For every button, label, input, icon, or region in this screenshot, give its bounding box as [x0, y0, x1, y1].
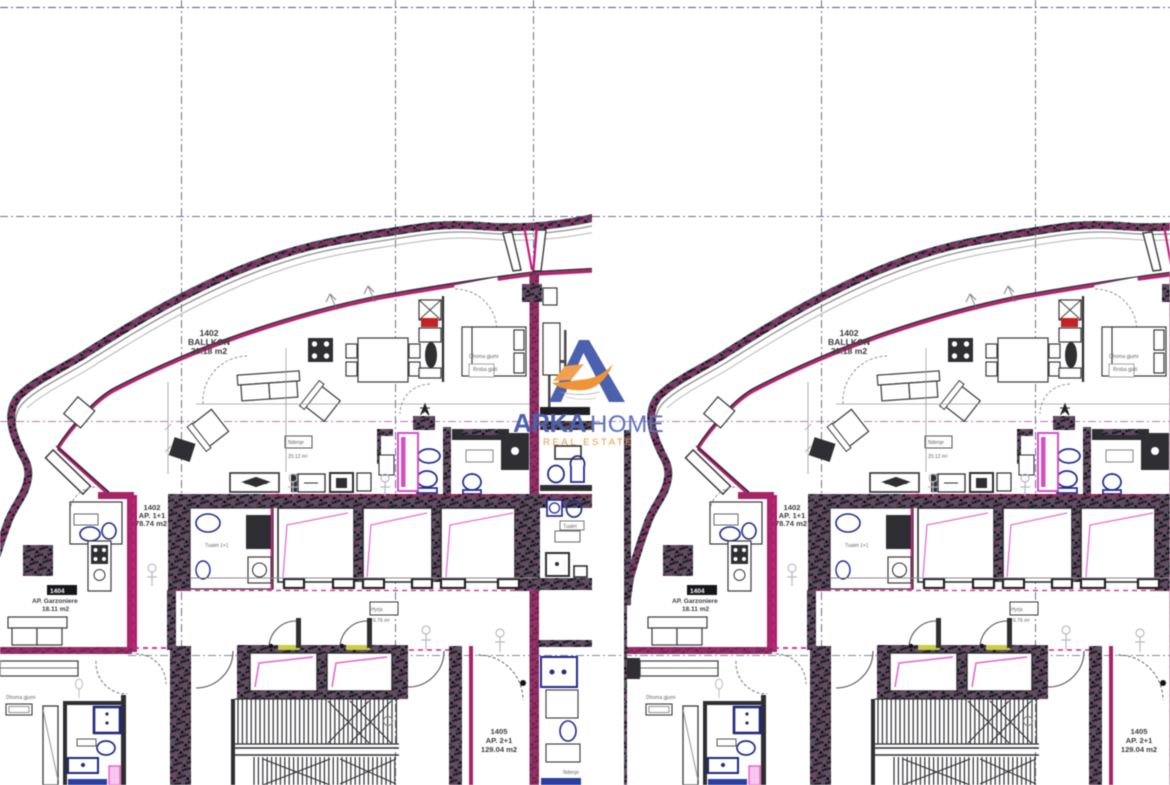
- svg-text:REAL ESTATE: REAL ESTATE: [543, 437, 634, 448]
- svg-text:HOME: HOME: [590, 411, 664, 438]
- svg-text:ARKA: ARKA: [513, 408, 587, 438]
